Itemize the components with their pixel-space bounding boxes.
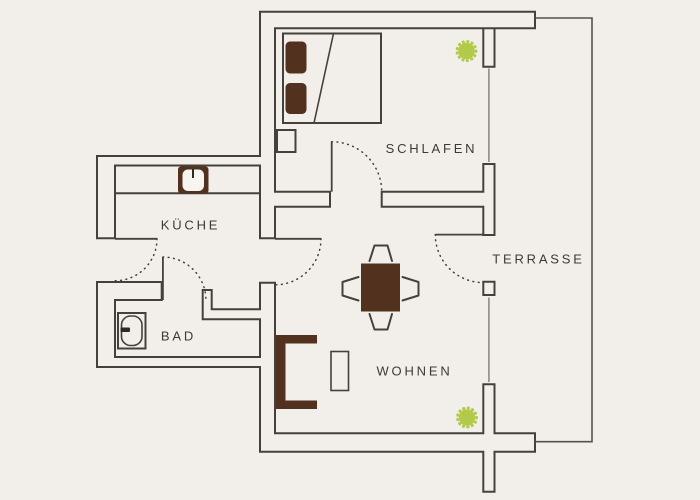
plant-icon bbox=[457, 408, 476, 427]
door-arc-bedroom bbox=[332, 142, 382, 192]
nightstand bbox=[277, 130, 296, 152]
wall-divider-right bbox=[382, 164, 495, 235]
door-arc-living bbox=[275, 239, 321, 285]
room-labels: SCHLAFEN KÜCHE BAD WOHNEN TERRASSE bbox=[161, 141, 585, 379]
bed-pillow bbox=[286, 83, 307, 114]
wall-stub-top bbox=[483, 28, 494, 66]
room-label-wohnen: WOHNEN bbox=[376, 364, 452, 379]
chair-left bbox=[343, 277, 359, 301]
door-arc-terrace bbox=[435, 235, 483, 283]
blanket-line bbox=[314, 34, 334, 124]
chair-bottom bbox=[370, 314, 393, 330]
bed-pillow bbox=[286, 42, 307, 74]
chair-top bbox=[370, 246, 393, 262]
sofa bbox=[276, 335, 317, 409]
room-label-schlafen: SCHLAFEN bbox=[386, 141, 478, 156]
wall-bath-living bbox=[97, 282, 535, 492]
side-table bbox=[331, 352, 349, 391]
faucet bbox=[121, 328, 131, 333]
plant-icon bbox=[457, 41, 476, 60]
dining-table bbox=[361, 264, 400, 312]
room-label-kueche: KÜCHE bbox=[161, 218, 221, 233]
door-arc-bath bbox=[163, 257, 206, 300]
room-label-bad: BAD bbox=[161, 329, 196, 344]
chair-right bbox=[403, 277, 419, 301]
door-arc-entry bbox=[115, 239, 157, 281]
room-label-terrasse: TERRASSE bbox=[492, 252, 584, 267]
wall-post-terrace bbox=[483, 282, 494, 295]
terrace-boundary bbox=[535, 18, 592, 442]
floorplan: SCHLAFEN KÜCHE BAD WOHNEN TERRASSE bbox=[0, 0, 700, 500]
